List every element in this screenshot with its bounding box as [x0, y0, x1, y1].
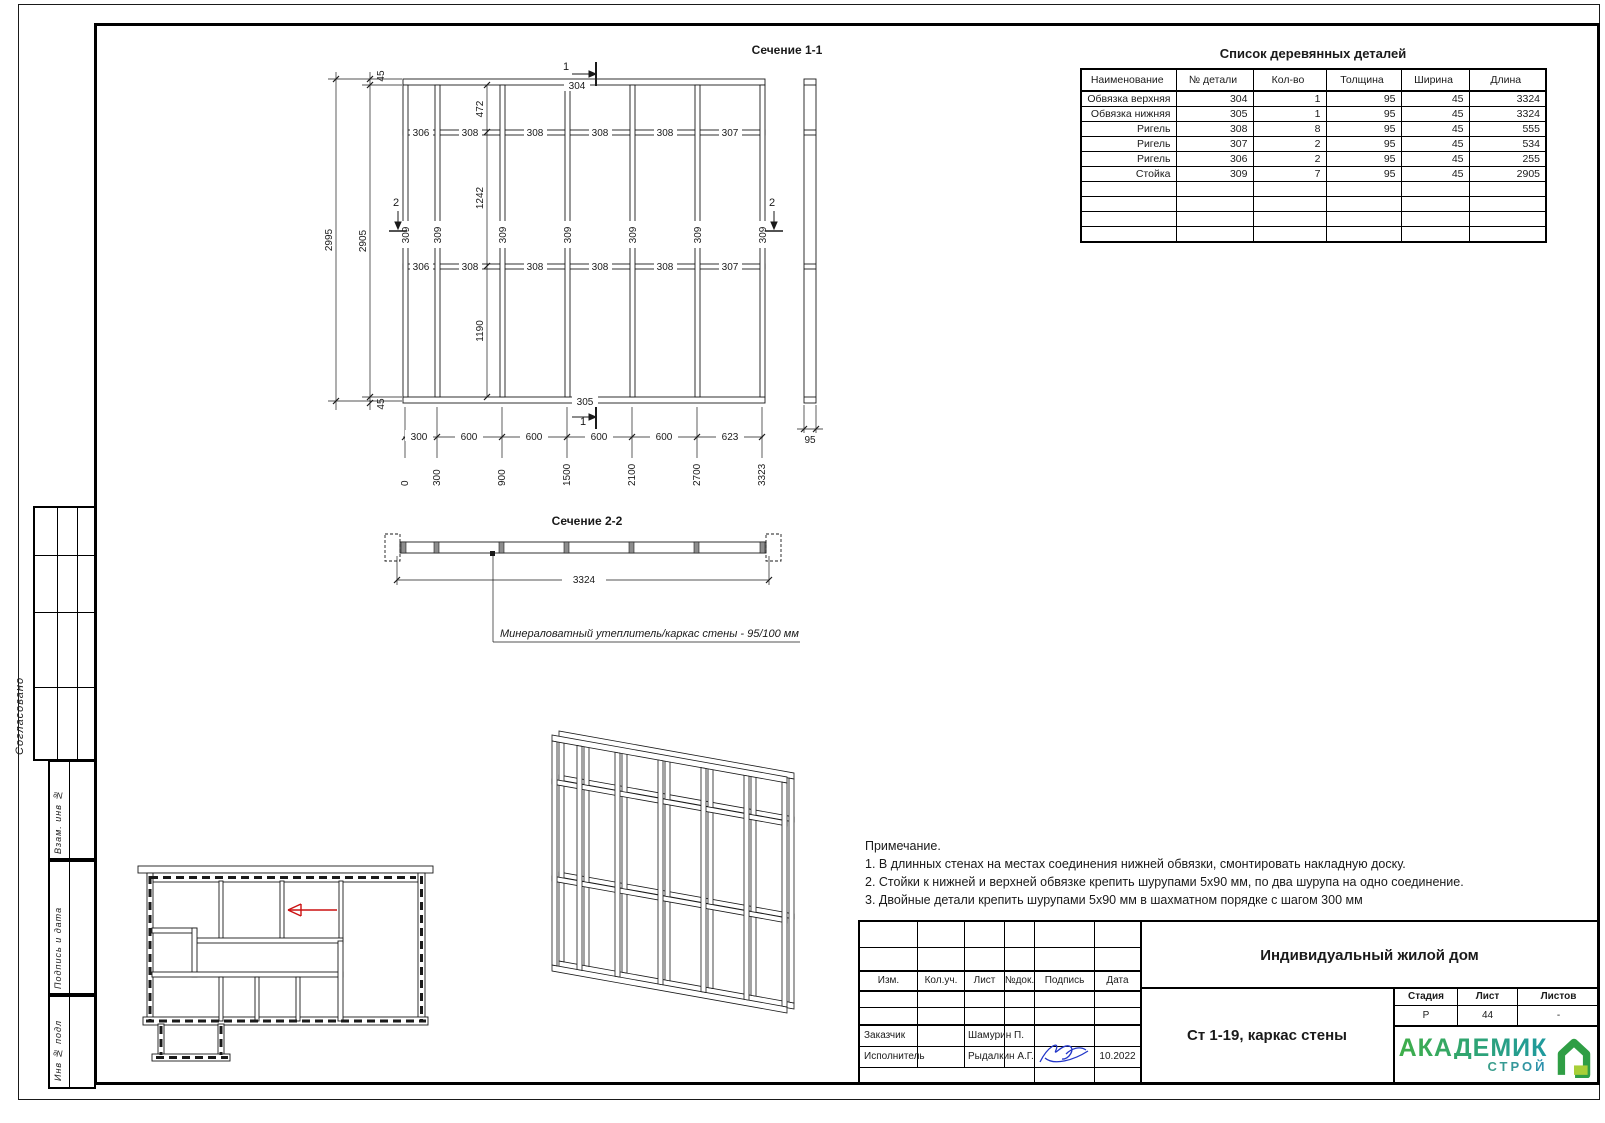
- cut-marker-2-left: 2: [393, 197, 399, 209]
- rail-label: 306: [413, 262, 430, 273]
- stud-label: 309: [758, 226, 769, 243]
- sidebar-box-vzam: Взам. инв №: [48, 760, 96, 862]
- logo-name: АКАДЕМИК: [1399, 1037, 1548, 1059]
- stud-label: 309: [433, 226, 444, 243]
- parts-table-title: Список деревянных деталей: [1080, 46, 1546, 61]
- notes-block: Примечание. 1. В длинных стенах на места…: [865, 837, 1525, 909]
- sheets-value: -: [1518, 1006, 1599, 1025]
- frame-3d-view: [520, 690, 850, 1035]
- section-2-2-title: Сечение 2-2: [552, 514, 623, 528]
- stud-label: 309: [498, 226, 509, 243]
- coord-label: 300: [432, 469, 443, 486]
- col-izm: Изм.: [860, 970, 917, 990]
- dim-bottom: 300: [411, 432, 428, 443]
- rail-label: 308: [527, 128, 544, 139]
- rail-label: 308: [527, 262, 544, 273]
- bottom-plate-label: 305: [577, 397, 594, 408]
- section-2-2-drawing: Сечение 2-2 3324 Минераловатный утеплите…: [370, 495, 810, 660]
- dim-472: 472: [475, 100, 486, 117]
- stud-label: 309: [693, 226, 704, 243]
- stud-label: 309: [628, 226, 639, 243]
- parts-table: Наименование № детали Кол-во Толщина Шир…: [1080, 68, 1547, 243]
- dim-inner-height: 2905: [358, 229, 369, 252]
- col-width: Ширина: [1401, 69, 1469, 91]
- note-item: 2. Стойки к нижней и верхней обвязке кре…: [865, 873, 1525, 891]
- parts-table-header-row: Наименование № детали Кол-во Толщина Шир…: [1081, 69, 1546, 91]
- rail-label: 308: [592, 262, 609, 273]
- section-1-1-title: Сечение 1-1: [752, 43, 823, 57]
- table-row-empty: [1081, 197, 1546, 212]
- rail-label: 308: [462, 262, 479, 273]
- col-part-no: № детали: [1176, 69, 1253, 91]
- dim-side-width: 95: [804, 435, 816, 446]
- rail-label: 308: [592, 128, 609, 139]
- logo-sub: СТРОЙ: [1399, 1059, 1548, 1074]
- stage-value: Р: [1395, 1006, 1457, 1025]
- stage-label: Стадия: [1395, 988, 1457, 1005]
- title-block: Изм. Кол.уч. Лист №док. Подпись Дата Зак…: [858, 920, 1599, 1084]
- sidebar-label-podpis: Подпись и дата: [53, 866, 63, 989]
- col-name: Наименование: [1081, 69, 1176, 91]
- approved-label: Согласовано: [14, 635, 26, 755]
- dim-bottom: 600: [526, 432, 543, 443]
- insulation-note: Минераловатный утеплитель/каркас стены -…: [500, 628, 799, 640]
- rail-label: 307: [722, 262, 739, 273]
- coord-label: 1500: [562, 463, 573, 486]
- table-row: Обвязка верхняя304195453324: [1081, 91, 1546, 107]
- wall-pointer-arrow: [288, 904, 337, 916]
- sheet-label: Лист: [1458, 988, 1517, 1005]
- coord-label: 900: [497, 469, 508, 486]
- sidebar-label-vzam: Взам. инв №: [53, 768, 63, 854]
- note-item: 1. В длинных стенах на местах соединения…: [865, 855, 1525, 873]
- dim-plate-top: 45: [376, 70, 387, 82]
- top-plate-label: 304: [569, 81, 586, 92]
- sheets-label: Листов: [1518, 988, 1599, 1005]
- dim-bottom: 600: [656, 432, 673, 443]
- cut-marker-1-bottom: 1: [580, 416, 586, 428]
- col-list: Лист: [965, 970, 1004, 990]
- stud-label: 309: [401, 226, 412, 243]
- cut-marker-1-top: 1: [563, 61, 569, 73]
- dim-bottom: 600: [461, 432, 478, 443]
- rail-label: 307: [722, 128, 739, 139]
- drawing-sheet: Согласовано Взам. инв № Подпись и дата И…: [0, 0, 1605, 1123]
- sidebar-box-inv: Инв № подл: [48, 993, 96, 1089]
- col-qty: Кол-во: [1253, 69, 1326, 91]
- dim-plate-bottom: 45: [376, 398, 387, 410]
- table-row: Ригель30889545555: [1081, 122, 1546, 137]
- table-row: Ригель30729545534: [1081, 137, 1546, 152]
- rail-label: 308: [657, 262, 674, 273]
- sheet-value: 44: [1458, 1006, 1517, 1025]
- project-title: Индивидуальный жилой дом: [1142, 924, 1597, 986]
- table-row-empty: [1081, 227, 1546, 243]
- coord-label: 3323: [757, 463, 768, 486]
- sheet-object-title: Ст 1-19, каркас стены: [1142, 989, 1392, 1082]
- dim-1242: 1242: [475, 186, 486, 209]
- sidebar-label-inv: Инв № подл: [53, 1001, 63, 1081]
- approval-grid: [33, 506, 96, 761]
- company-logo: АКАДЕМИК СТРОЙ: [1395, 1027, 1599, 1084]
- executor-name: Рыдалкин А.Г.: [968, 1046, 1034, 1067]
- dim-3324: 3324: [573, 575, 596, 586]
- dim-bottom: 600: [591, 432, 608, 443]
- rail-label: 308: [462, 128, 479, 139]
- customer-name: Шамурин П.: [968, 1024, 1034, 1046]
- rail-label: 308: [657, 128, 674, 139]
- table-row-empty: [1081, 182, 1546, 197]
- col-length: Длина: [1469, 69, 1546, 91]
- dim-1190: 1190: [475, 320, 486, 342]
- executor-date: 10.2022: [1095, 1046, 1140, 1067]
- table-row-empty: [1081, 212, 1546, 227]
- cut-marker-2-right: 2: [769, 197, 775, 209]
- section-1-1-drawing: 306 308 308 308 308 307 306 308 308 308 …: [300, 30, 845, 505]
- col-koluch: Кол.уч.: [918, 970, 964, 990]
- stud-label: 309: [563, 226, 574, 243]
- sidebar-box-podpis: Подпись и дата: [48, 858, 96, 997]
- floor-plan: [130, 840, 450, 1072]
- coord-label: 2100: [627, 463, 638, 486]
- rail-label: 306: [413, 128, 430, 139]
- customer-label: Заказчик: [864, 1024, 964, 1046]
- col-ndok: №док.: [1005, 970, 1034, 990]
- dim-bottom: 623: [722, 432, 739, 443]
- house-icon: [1553, 1034, 1595, 1078]
- note-item: 3. Двойные детали крепить шурупами 5х90 …: [865, 891, 1525, 909]
- dim-total-height: 2995: [324, 228, 335, 251]
- coord-label: 0: [400, 480, 411, 486]
- col-data: Дата: [1095, 970, 1140, 990]
- coord-label: 2700: [692, 463, 703, 486]
- notes-title: Примечание.: [865, 837, 1525, 855]
- col-podpis: Подпись: [1035, 970, 1094, 990]
- executor-label: Исполнитель: [864, 1046, 964, 1067]
- signature: [1036, 1038, 1094, 1068]
- col-thickness: Толщина: [1326, 69, 1401, 91]
- table-row: Ригель30629545255: [1081, 152, 1546, 167]
- table-row: Стойка309795452905: [1081, 167, 1546, 182]
- table-row: Обвязка нижняя305195453324: [1081, 107, 1546, 122]
